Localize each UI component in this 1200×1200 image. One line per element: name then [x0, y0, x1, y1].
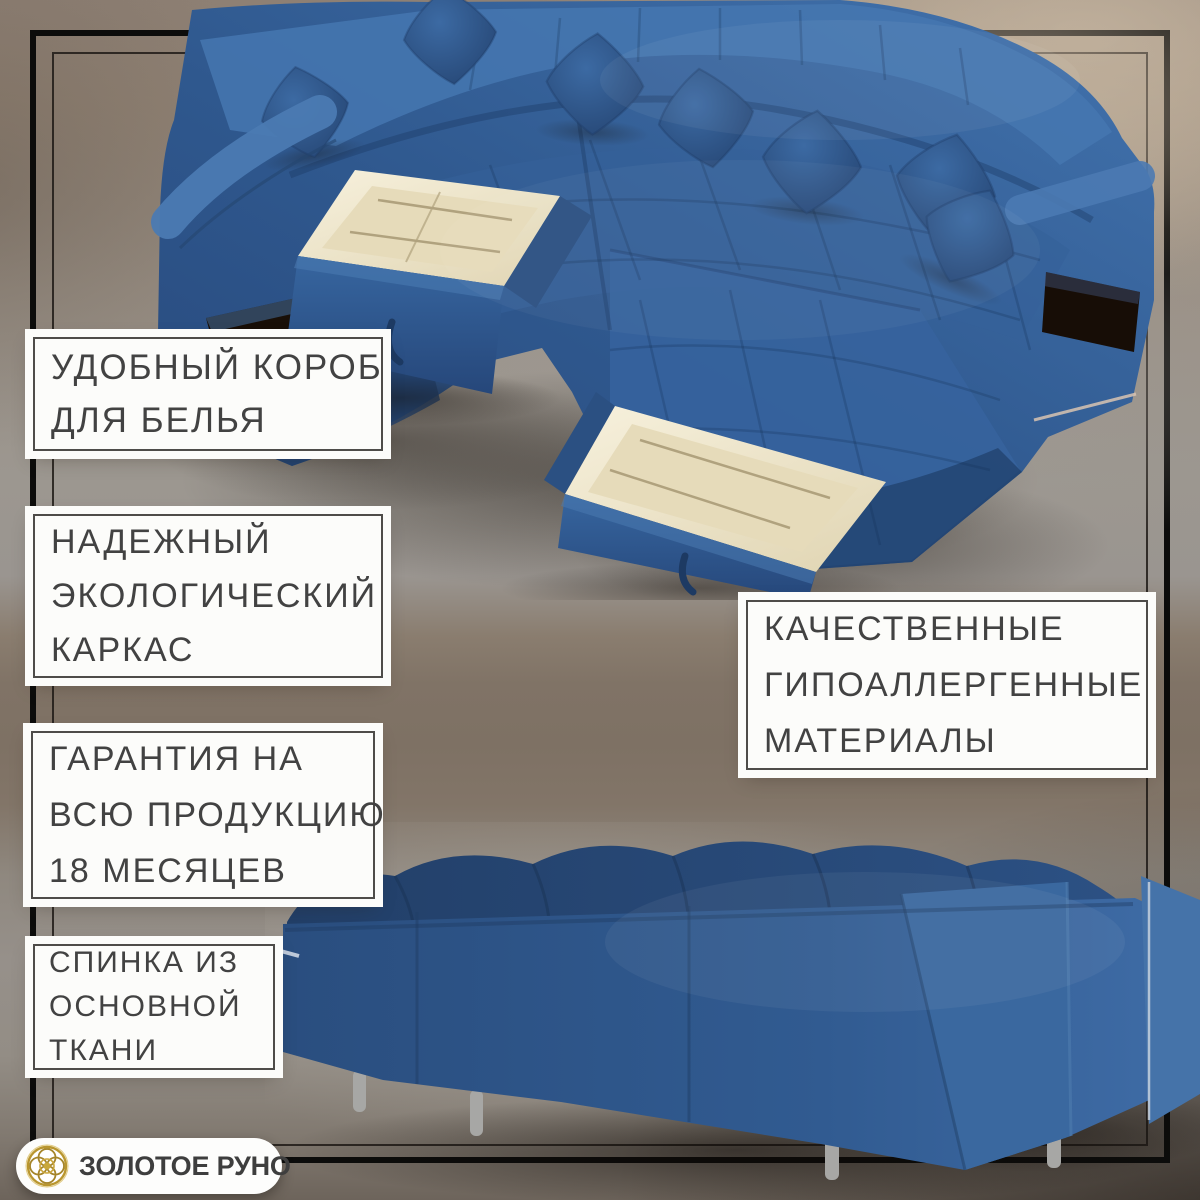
callout-materials: КАЧЕСТВЕННЫЕ ГИПОАЛЛЕРГЕННЫЕ МАТЕРИАЛЫ: [746, 600, 1148, 770]
callout-warranty: ГАРАНТИЯ НА ВСЮ ПРОДУКЦИЮ 18 МЕСЯЦЕВ: [31, 731, 375, 899]
brand-badge: ЗОЛОТОЕ РУНО: [16, 1138, 282, 1194]
feature-line: УДОБНЫЙ КОРОБ: [51, 341, 381, 394]
feature-line: НАДЕЖНЫЙ: [51, 515, 381, 569]
callout-eco-frame: НАДЕЖНЫЙ ЭКОЛОГИЧЕСКИЙ КАРКАС: [33, 514, 383, 678]
feature-line: КАРКАС: [51, 623, 381, 677]
feature-line: ДЛЯ БЕЛЬЯ: [51, 394, 381, 447]
feature-line: 18 МЕСЯЦЕВ: [49, 843, 373, 899]
feature-line: СПИНКА ИЗ: [49, 941, 273, 985]
sofa-back-photo: [265, 822, 1200, 1200]
feature-line: ЭКОЛОГИЧЕСКИЙ: [51, 569, 381, 623]
feature-line: ОСНОВНОЙ: [49, 985, 273, 1029]
sofa-front-photo: [140, 0, 1200, 600]
callout-backrest-fabric: СПИНКА ИЗ ОСНОВНОЙ ТКАНИ: [33, 944, 275, 1070]
product-card: УДОБНЫЙ КОРОБ ДЛЯ БЕЛЬЯ НАДЕЖНЫЙ ЭКОЛОГИ…: [0, 0, 1200, 1200]
feature-line: КАЧЕСТВЕННЫЕ: [764, 601, 1146, 657]
feature-line: ГИПОАЛЛЕРГЕННЫЕ: [764, 657, 1146, 713]
golden-rosette-icon: [25, 1144, 69, 1188]
feature-line: ВСЮ ПРОДУКЦИЮ: [49, 787, 373, 843]
feature-line: ГАРАНТИЯ НА: [49, 731, 373, 787]
feature-line: ТКАНИ: [49, 1029, 273, 1073]
brand-name: ЗОЛОТОЕ РУНО: [79, 1151, 291, 1182]
feature-line: МАТЕРИАЛЫ: [764, 713, 1146, 769]
callout-laundry-box: УДОБНЫЙ КОРОБ ДЛЯ БЕЛЬЯ: [33, 337, 383, 451]
